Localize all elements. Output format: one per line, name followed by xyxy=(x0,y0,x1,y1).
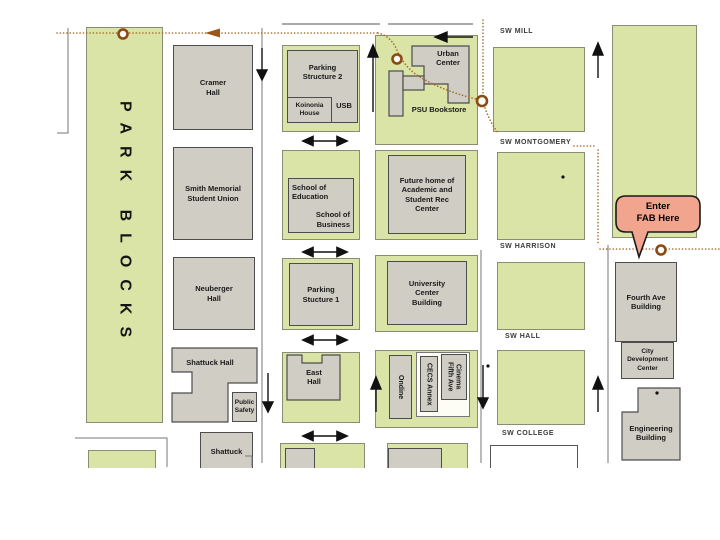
street-label-sw-montgomery: SW MONTGOMERY xyxy=(500,139,571,146)
down-arrow-icon xyxy=(263,373,273,412)
up-arrow-icon xyxy=(368,45,378,112)
street-line-park-west xyxy=(57,28,68,133)
callout-enter-fab-text: Enter FAB Here xyxy=(618,201,698,226)
street-label-sw-harrison: SW HARRISON xyxy=(500,243,556,250)
one-way-arrows xyxy=(257,32,603,412)
shattuck-hall-label: Shattuck Hall xyxy=(185,358,235,367)
map-dot xyxy=(561,175,564,178)
circle-ring-marker-icon xyxy=(657,246,666,255)
street-line-southwest xyxy=(75,438,167,467)
callout-line2: FAB Here xyxy=(618,213,698,225)
circle-ring-marker-icon xyxy=(477,96,487,106)
up-arrow-icon xyxy=(371,377,381,412)
bottom-margin xyxy=(0,468,720,540)
two-way-arrow-icon xyxy=(303,336,347,345)
circle-ring-marker-icon xyxy=(393,55,402,64)
route-arrowhead-icon xyxy=(205,29,220,38)
circle-ring-marker-icon xyxy=(119,30,128,39)
east-hall-label: East Hall xyxy=(300,368,328,387)
down-arrow-icon xyxy=(478,365,488,408)
callout-line1: Enter xyxy=(618,201,698,213)
two-way-arrow-icon xyxy=(303,248,347,257)
up-arrow-icon xyxy=(593,43,603,78)
shattuck-south-annex-edge xyxy=(245,456,252,467)
campus-map: PARK BLOCKS Cramer Hall Smith Memorial S… xyxy=(0,0,720,540)
map-dot xyxy=(655,391,658,394)
route-segment-to-montgomery xyxy=(485,108,498,133)
urban-center-wing-shape xyxy=(403,76,424,90)
street-label-sw-college: SW COLLEGE xyxy=(502,430,554,437)
up-arrow-icon xyxy=(593,377,603,412)
street-label-sw-mill: SW MILL xyxy=(500,28,533,35)
down-arrow-icon xyxy=(257,48,267,80)
urban-center-tower-shape xyxy=(389,71,403,116)
engineering-building-label: Engineering Building xyxy=(626,424,676,443)
urban-center-label: Urban Center xyxy=(430,49,466,68)
map-overlay xyxy=(0,0,720,540)
psu-bookstore-label: PSU Bookstore xyxy=(406,105,472,114)
left-arrow-icon xyxy=(435,32,473,42)
street-label-sw-hall: SW HALL xyxy=(505,333,540,340)
two-way-arrow-icon xyxy=(303,137,347,146)
entrance-markers xyxy=(119,30,666,255)
two-way-arrow-icon xyxy=(303,432,347,441)
map-dot xyxy=(486,364,489,367)
